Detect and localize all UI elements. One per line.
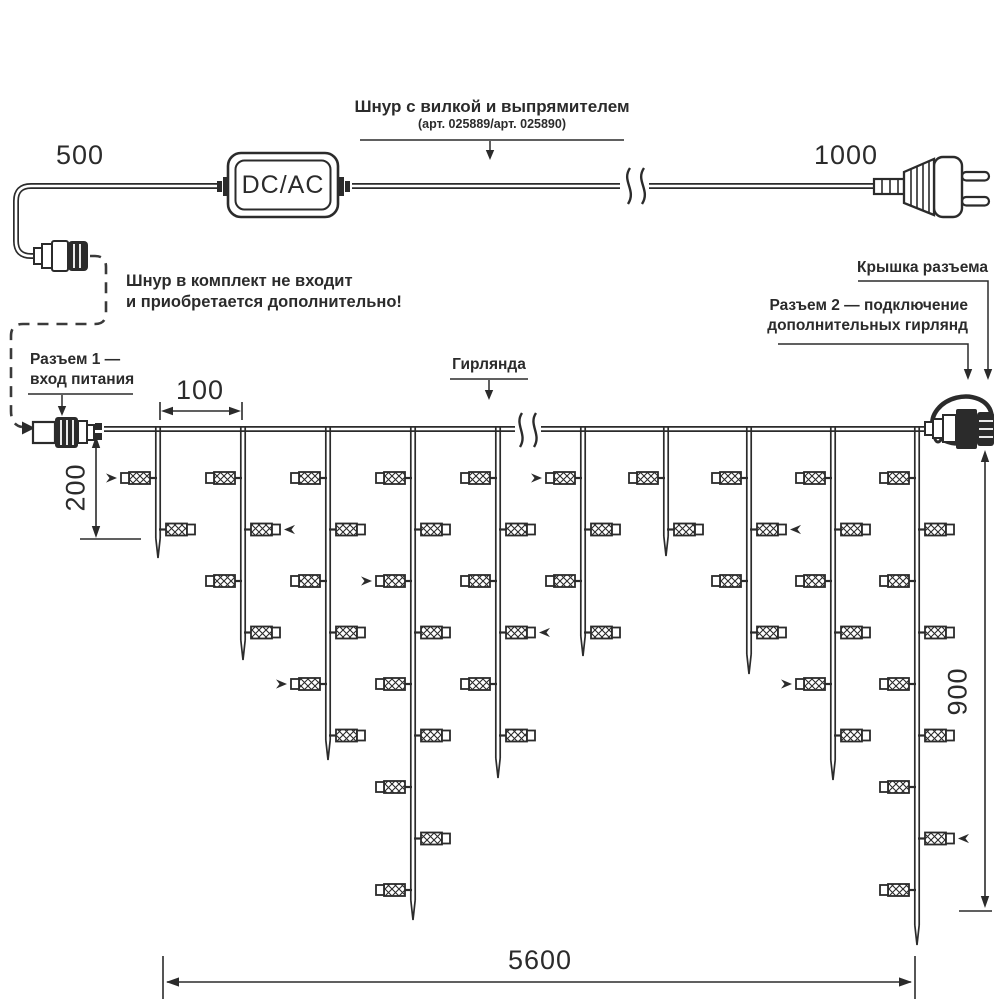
dim-5600-label: 5600	[486, 945, 594, 976]
icicle-drop	[531, 427, 620, 656]
lamp-pointer-arrow	[790, 525, 801, 534]
lamp-icon	[376, 472, 412, 484]
lamp-icon	[750, 524, 801, 536]
lamp-icon	[712, 472, 748, 484]
dim-100-label: 100	[166, 375, 234, 406]
garland-label: Гирлянда	[439, 356, 539, 374]
lamp-icon	[461, 678, 497, 690]
lamp-icon	[712, 575, 748, 587]
drop-tip	[915, 925, 919, 945]
lamp-icon	[329, 627, 365, 639]
lamp-icon	[918, 833, 969, 845]
lamp-icon	[880, 884, 916, 896]
lamp-icon	[531, 472, 582, 484]
cord-label-leader	[360, 140, 624, 160]
lamp-icon	[376, 781, 412, 793]
connector2-leader	[778, 344, 972, 380]
lamp-icon	[834, 730, 870, 742]
lamp-icon	[880, 472, 916, 484]
lamp-icon	[880, 781, 916, 793]
lamp-icon	[291, 575, 327, 587]
lamp-icon	[244, 524, 295, 536]
dashed-leader-line	[11, 256, 106, 435]
wire-break-icon	[519, 413, 536, 447]
drop-tip	[496, 758, 500, 778]
drop-tip	[581, 636, 585, 656]
lamp-icon	[546, 575, 582, 587]
icicle-drop	[629, 427, 703, 556]
lamp-icon	[329, 524, 365, 536]
lamp-icon	[414, 833, 450, 845]
lamp-icon	[750, 627, 786, 639]
lamp-pointer-arrow	[284, 525, 295, 534]
lamp-icon	[461, 575, 497, 587]
lamp-icon	[206, 472, 242, 484]
lamp-pointer-arrow	[106, 473, 117, 482]
not-included-note-line2: и приобретается дополнительно!	[126, 293, 402, 312]
lamp-icon	[499, 627, 550, 639]
mains-plug-icon	[874, 155, 989, 220]
icicle-drop	[712, 427, 801, 674]
lamp-icon	[206, 575, 242, 587]
lamp-icon	[667, 524, 703, 536]
lamp-icon	[329, 730, 365, 742]
lamp-icon	[796, 575, 832, 587]
icicle-drop	[206, 427, 295, 660]
icicle-drop	[276, 427, 365, 760]
lamp-icon	[796, 472, 832, 484]
dim-1000-label: 1000	[806, 140, 886, 171]
lamp-icon	[918, 627, 954, 639]
dim-500-label: 500	[45, 140, 115, 171]
lamp-icon	[291, 472, 327, 484]
lamp-icon	[918, 524, 954, 536]
dcac-label: DC/AC	[228, 171, 338, 200]
drop-tip	[411, 900, 415, 920]
lamp-icon	[361, 575, 412, 587]
lamp-icon	[276, 678, 327, 690]
drop-tip	[831, 760, 835, 780]
lamp-icon	[584, 627, 620, 639]
start-connector-icon	[33, 417, 102, 448]
cord-break-icon	[627, 168, 645, 204]
cord-label: Шнур с вилкой и выпрямителем	[342, 97, 642, 117]
lamp-icon	[106, 472, 157, 484]
icicle-drop	[361, 427, 450, 920]
lamp-icon	[629, 472, 665, 484]
lamp-icon	[880, 575, 916, 587]
lamp-icon	[414, 524, 450, 536]
drop-tip	[156, 538, 160, 558]
lamp-pointer-arrow	[539, 628, 550, 637]
end-connector-icon	[925, 390, 997, 449]
cord-article-label: (арт. 025889/арт. 025890)	[342, 117, 642, 131]
lamp-icon	[499, 524, 535, 536]
garland-label-leader	[450, 379, 528, 400]
connector1-label-line2: вход питания	[30, 371, 134, 389]
lamp-pointer-arrow	[781, 679, 792, 688]
dim-200-label: 200	[61, 448, 92, 528]
lamp-pointer-arrow	[531, 473, 542, 482]
drop-tip	[747, 654, 751, 674]
connector1-label-line1: Разъем 1 —	[30, 351, 120, 369]
dim-900-label: 900	[943, 652, 974, 732]
lamp-icon	[834, 524, 870, 536]
lamp-icon	[880, 678, 916, 690]
drop-tip	[664, 536, 668, 556]
not-included-note-line1: Шнур в комплект не входит	[126, 272, 353, 291]
lamp-icon	[414, 730, 450, 742]
connector2-label-line1: Разъем 2 — подключение	[730, 297, 968, 315]
lamp-icon	[499, 730, 535, 742]
lamp-icon	[376, 678, 412, 690]
lamp-icon	[461, 472, 497, 484]
lamp-icon	[834, 627, 870, 639]
lamp-pointer-arrow	[361, 576, 372, 585]
lamp-pointer-arrow	[276, 679, 287, 688]
drop-tip	[326, 740, 330, 760]
drop-tip	[241, 640, 245, 660]
connector1-leader	[28, 394, 133, 416]
diagram-canvas: Шнур с вилкой и выпрямителем (арт. 02588…	[0, 0, 1000, 1000]
connector2-label-line2: дополнительных гирлянд	[730, 317, 968, 335]
cap-label: Крышка разъема	[790, 259, 988, 277]
lamp-icon	[584, 524, 620, 536]
lamp-icon	[159, 524, 195, 536]
lamp-icon	[376, 884, 412, 896]
icicle-drop	[781, 427, 870, 780]
lamp-pointer-arrow	[958, 834, 969, 843]
lamp-icon	[781, 678, 832, 690]
lamp-icon	[414, 627, 450, 639]
garland-drops	[106, 427, 969, 945]
lamp-icon	[244, 627, 280, 639]
adapter-connector-icon	[34, 241, 88, 271]
